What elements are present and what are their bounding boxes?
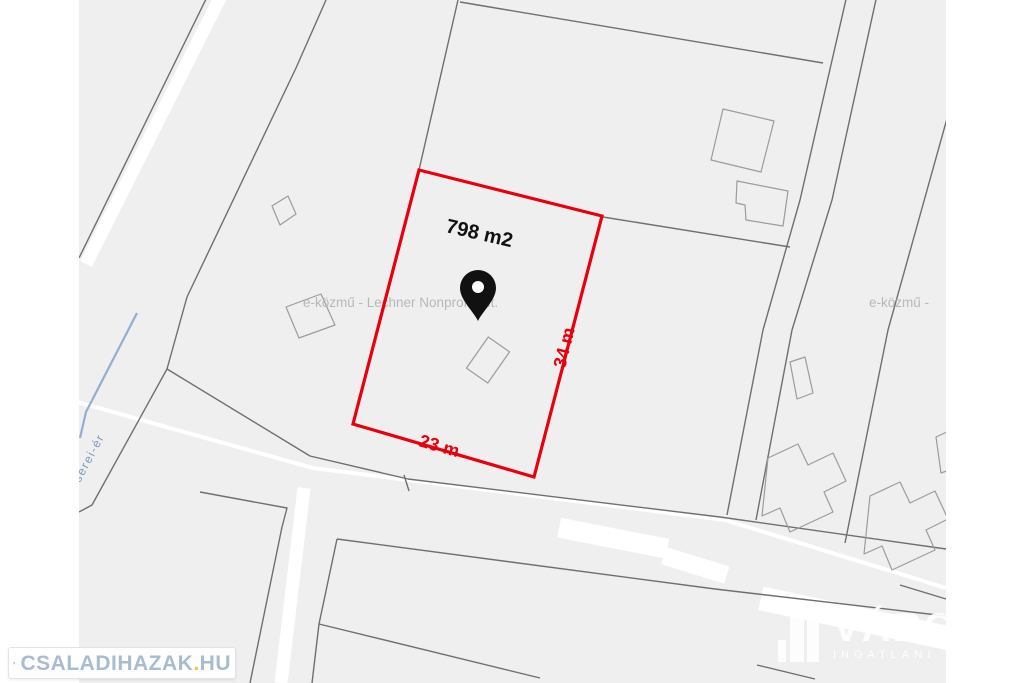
csaladihazak-logo: CSALADIHAZAK.HU: [8, 647, 236, 679]
plot-map-screenshot: serei-ér e-közmű - Lechner Nonprofit Kft…: [0, 0, 1024, 683]
map-background: [0, 0, 1024, 683]
logo-text-main: CSALADIHAZAK: [20, 652, 193, 675]
logo-text: CSALADIHAZAK.HU: [20, 653, 231, 674]
map-canvas: serei-ér e-közmű - Lechner Nonprofit Kft…: [0, 0, 1024, 683]
right-margin: [946, 0, 1024, 683]
ekozmu-watermark-right: e-közmű -: [869, 295, 929, 310]
logo-text-tld: HU: [200, 652, 231, 675]
house-icon: [13, 650, 15, 676]
left-margin: [0, 0, 79, 683]
varos-watermark-subtitle: INGATLANI: [833, 649, 935, 661]
varos-watermark-title: VÁRO: [833, 605, 957, 650]
